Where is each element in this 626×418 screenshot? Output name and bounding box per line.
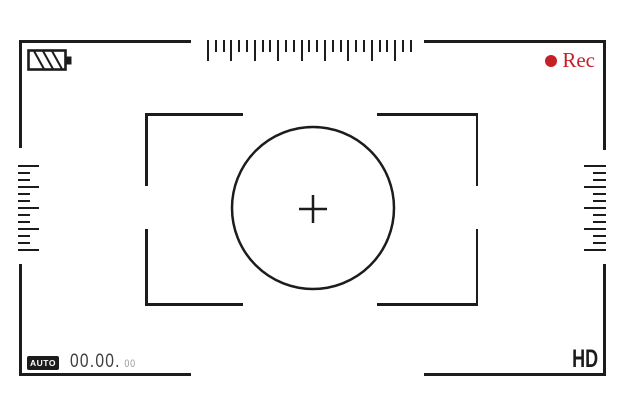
ruler-tick [18,249,39,251]
ruler-tick [584,228,606,230]
ruler-tick [18,242,30,244]
ruler-tick [207,40,209,61]
ruler-tick [246,40,248,52]
ruler-tick [18,179,30,181]
focus-bracket-top-right-h [377,113,478,116]
auto-mode-badge[interactable]: AUTO [27,356,59,370]
ruler-tick [230,40,232,61]
ruler-tick [262,40,264,52]
ruler-tick [223,40,225,52]
ruler-tick [332,40,334,52]
frame-left-bottom-edge [19,264,22,376]
ruler-tick [18,207,39,209]
ruler-tick [18,186,39,188]
left-scale-ruler [18,165,40,253]
ruler-tick [316,40,318,52]
ruler-tick [347,40,349,61]
ruler-tick [254,40,256,61]
ruler-tick [18,193,30,195]
ruler-tick [18,228,39,230]
ruler-tick [355,40,357,52]
ruler-tick [593,193,606,195]
ruler-tick [584,249,606,251]
timecode: 00.00. 00 [70,351,136,373]
ruler-tick [379,40,381,52]
ruler-tick [593,200,606,202]
ruler-tick [593,172,606,174]
ruler-tick [394,40,396,61]
ruler-tick [18,172,30,174]
ruler-tick [593,214,606,216]
ruler-tick [593,242,606,244]
frame-top-right-edge [424,40,606,43]
frame-left-top-edge [19,40,22,148]
frame-bottom-left-edge [19,373,191,376]
ruler-tick [410,40,412,52]
focus-bracket-bottom-right-h [377,303,478,306]
ruler-tick [18,200,30,202]
top-scale-ruler [207,40,412,62]
ruler-tick [215,40,217,52]
crosshair-plus-icon [299,195,327,223]
ruler-tick [386,40,388,52]
focus-bracket-left-bottom-v [145,229,148,306]
ruler-tick [584,186,606,188]
ruler-tick [324,40,326,61]
ruler-tick [277,40,279,61]
hd-quality-badge[interactable]: HD [572,345,598,374]
ruler-tick [593,221,606,223]
focus-bracket-right-top-v [476,113,479,186]
focus-bracket-top-left-h [145,113,243,116]
ruler-tick [293,40,295,52]
frame-right-top-edge [603,40,606,150]
right-scale-ruler [584,165,606,253]
ruler-tick [584,207,606,209]
viewfinder-canvas: Rec AUTO 00.00. 00 HD [0,0,626,418]
ruler-tick [238,40,240,52]
rec-label: Rec [562,50,595,71]
ruler-tick [18,214,30,216]
ruler-tick [363,40,365,52]
focus-bracket-bottom-left-h [145,303,243,306]
battery-icon [27,49,72,77]
frame-top-left-edge [19,40,191,43]
ruler-tick [593,235,606,237]
ruler-tick [584,165,606,167]
focus-target [228,123,398,293]
frame-right-bottom-edge [603,264,606,376]
record-dot-icon [545,55,557,67]
ruler-tick [18,235,30,237]
ruler-tick [402,40,404,52]
battery-striped-icon [27,49,72,72]
ruler-tick [18,221,30,223]
ruler-tick [18,165,39,167]
timecode-frames: 00 [124,358,136,370]
ruler-tick [371,40,373,61]
rec-indicator[interactable]: Rec [545,50,595,71]
timecode-main: 00.00. [70,351,121,372]
ruler-tick [340,40,342,52]
ruler-tick [301,40,303,61]
ruler-tick [285,40,287,52]
focus-bracket-left-top-v [145,113,148,186]
ruler-tick [269,40,271,52]
ruler-tick [308,40,310,52]
focus-bracket-right-bottom-v [476,229,479,306]
ruler-tick [593,179,606,181]
